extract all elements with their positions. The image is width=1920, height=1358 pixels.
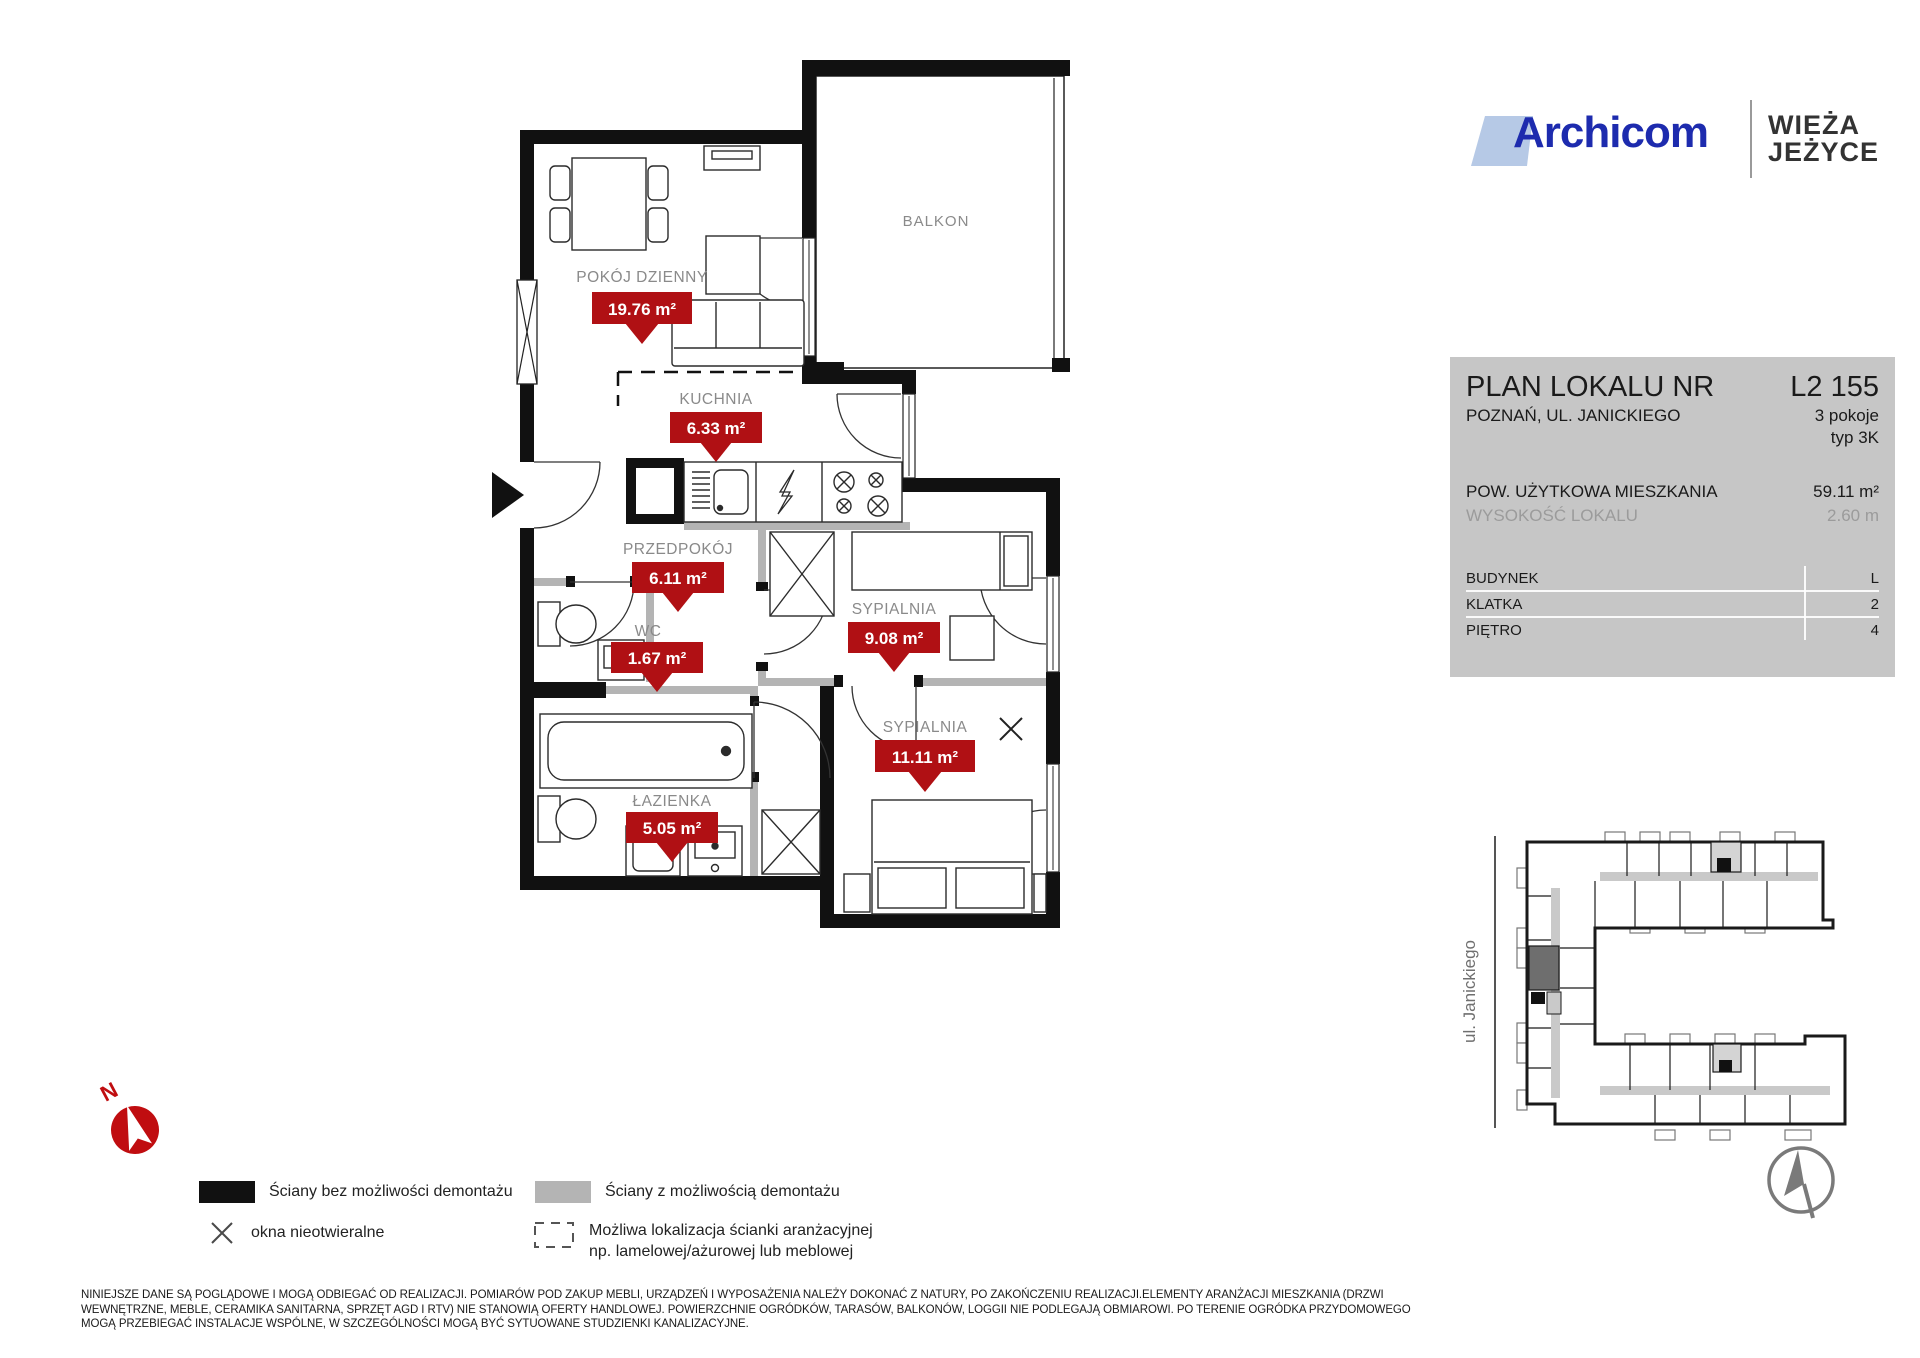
unit-type: typ 3K (1831, 428, 1879, 448)
project-name-line2: JEŻYCE (1768, 139, 1879, 166)
table-row-klatka: KLATKA 2 (1466, 590, 1879, 616)
north-letter: N (96, 1077, 122, 1107)
kitchen-window (903, 394, 915, 478)
room-label-bath: ŁAZIENKA (633, 793, 712, 810)
unit-info-panel: PLAN LOKALU NR L2 155 POZNAŃ, UL. JANICK… (1450, 357, 1895, 677)
logo-divider (1750, 100, 1752, 178)
table-divider (1804, 566, 1806, 640)
area-tag-bedroom1: 9.08 m² (848, 622, 940, 672)
legend-walls-fixed: Ściany bez możliwości demontażu (199, 1181, 513, 1203)
header: Archicom WIEŻA JEŻYCE (1455, 100, 1895, 180)
legend-partition: Możliwa lokalizacja ścianki aranżacyjnej… (533, 1220, 873, 1262)
table-value: 4 (1871, 622, 1879, 639)
table-value: 2 (1871, 596, 1879, 613)
unit-number: L2 155 (1790, 371, 1879, 404)
bathtub (540, 714, 752, 788)
room-label-kitchen: KUCHNIA (679, 391, 752, 408)
room-label-living: POKÓJ DZIENNY (576, 269, 707, 286)
legend-label: Możliwa lokalizacja ścianki aranżacyjnej… (589, 1220, 873, 1262)
x-mark-bedroom2 (1000, 718, 1022, 740)
site-map: ul. Janickiego (1455, 828, 1895, 1158)
tv-cabinet (704, 146, 760, 170)
usable-area-value: 59.11 m² (1813, 482, 1879, 502)
table-label: KLATKA (1466, 596, 1522, 613)
unit-height-label: WYSOKOŚĆ LOKALU (1466, 506, 1638, 526)
area-tag-wc: 1.67 m² (611, 642, 703, 692)
north-compass: N (80, 1068, 200, 1188)
kitchen-window-arc (837, 394, 901, 458)
brand-name: Archicom (1513, 108, 1708, 158)
fixed-window-living (517, 280, 537, 384)
svg-text:19.76 m²: 19.76 m² (608, 300, 676, 319)
table-label: BUDYNEK (1466, 570, 1539, 587)
rooms-count: 3 pokoje (1815, 406, 1879, 426)
balcony: BALKON (802, 60, 1070, 374)
table-value: L (1871, 570, 1879, 587)
floor-plan: BALKON (420, 30, 1100, 980)
balcony-door-window (803, 238, 815, 356)
bedside-table (950, 616, 994, 660)
legend-windows-fixed: okna nieotwieralne (207, 1218, 384, 1248)
disclaimer-text: NINIEJSZE DANE SĄ POGLĄDOWE I MOGĄ ODBIE… (81, 1288, 1446, 1332)
unit-address: POZNAŃ, UL. JANICKIEGO (1466, 406, 1680, 426)
highlighted-unit (1529, 946, 1559, 990)
building-outline (1517, 832, 1845, 1140)
table-label: PIĘTRO (1466, 622, 1522, 639)
dining-table (550, 158, 668, 250)
building-table: BUDYNEK L KLATKA 2 PIĘTRO 4 (1466, 564, 1879, 642)
project-name: WIEŻA JEŻYCE (1768, 112, 1879, 166)
entrance-arrow-icon (492, 472, 524, 518)
room-label-wc: WC (635, 623, 662, 640)
plan-title: PLAN LOKALU NR (1466, 371, 1714, 404)
svg-text:5.05 m²: 5.05 m² (643, 819, 702, 838)
wc-toilet (538, 602, 596, 646)
legend-label: Ściany bez możliwości demontażu (269, 1181, 513, 1202)
room-label-bedroom2: SYPIALNIA (883, 719, 968, 736)
legend-label: okna nieotwieralne (251, 1222, 384, 1243)
entrance-door (534, 462, 600, 528)
coffee-table (706, 236, 760, 294)
project-name-line1: WIEŻA (1768, 112, 1879, 139)
bathroom-door (754, 702, 830, 778)
wardrobe-bedroom1 (770, 532, 834, 616)
table-row-pietro: PIĘTRO 4 (1466, 616, 1879, 642)
adjacent-unit (1547, 992, 1561, 1014)
svg-text:9.08 m²: 9.08 m² (865, 629, 924, 648)
legend-label: Ściany z możliwością demontażu (605, 1181, 840, 1202)
svg-text:1.67 m²: 1.67 m² (628, 649, 687, 668)
area-tag-kitchen: 6.33 m² (670, 412, 762, 462)
svg-text:6.11 m²: 6.11 m² (649, 569, 707, 588)
area-tag-hall: 6.11 m² (632, 562, 724, 612)
room-label-hall: PRZEDPOKÓJ (623, 541, 733, 558)
x-window-icon (207, 1218, 237, 1248)
bathroom-toilet (538, 796, 596, 842)
bedroom1-window (1047, 576, 1059, 672)
street-label: ul. Janickiego (1460, 940, 1479, 1043)
fixed-wall-swatch (199, 1181, 255, 1203)
orientation-compass (1756, 1138, 1846, 1228)
page: Archicom WIEŻA JEŻYCE PLAN LOKALU NR L2 … (0, 0, 1920, 1358)
unit-height-value: 2.60 m (1827, 506, 1879, 526)
bedroom2-window (1047, 764, 1059, 872)
usable-area-label: POW. UŻYTKOWA MIESZKANIA (1466, 482, 1718, 502)
dashed-partition-icon (533, 1220, 575, 1250)
bed-single (852, 532, 1032, 590)
bed-double (844, 800, 1046, 914)
removable-wall-swatch (535, 1181, 591, 1203)
legend-walls-removable: Ściany z możliwością demontażu (535, 1181, 840, 1203)
svg-text:6.33 m²: 6.33 m² (687, 419, 746, 438)
svg-text:11.11 m²: 11.11 m² (892, 748, 959, 767)
table-row-budynek: BUDYNEK L (1466, 564, 1879, 590)
balcony-label: BALKON (903, 213, 970, 230)
area-tag-bedroom2: 11.11 m² (875, 740, 975, 792)
utility-shaft (626, 458, 684, 524)
room-label-bedroom1: SYPIALNIA (852, 601, 937, 618)
wardrobe-hall (762, 810, 820, 874)
kitchen-counter (684, 462, 902, 522)
